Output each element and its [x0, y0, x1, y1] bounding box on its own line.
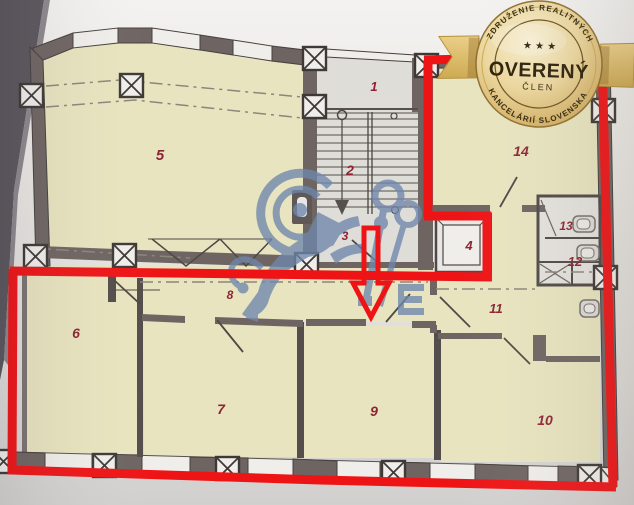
badge-subtitle: ČLEN: [522, 81, 554, 92]
room-11-label: 11: [489, 301, 503, 316]
room-13-label: 13: [559, 219, 573, 233]
floorplan-photo: 1 2 3 4 5 6 7 8 9 10 11 12 13 14: [0, 0, 634, 505]
room-10-label: 10: [537, 412, 553, 428]
red-outline-lower-units: [10, 271, 492, 277]
room-8-label: 8: [227, 288, 234, 302]
floorplan-drawing: 1 2 3 4 5 6 7 8 9 10 11 12 13 14: [0, 0, 634, 505]
room-14-label: 14: [513, 143, 529, 159]
room-12-label: 12: [568, 254, 583, 269]
badge-stars-icon: ★ ★ ★: [523, 40, 557, 52]
room-9-label: 9: [370, 403, 378, 419]
room-4-label: 4: [464, 238, 473, 253]
elevator: [436, 218, 487, 272]
room-7-label: 7: [217, 401, 226, 417]
room-2-label: 2: [345, 162, 354, 178]
room-6-label: 6: [72, 325, 80, 341]
room-1-label: 1: [370, 79, 377, 94]
badge-title: OVERENÝ: [488, 56, 589, 83]
room-5-label: 5: [156, 147, 165, 164]
